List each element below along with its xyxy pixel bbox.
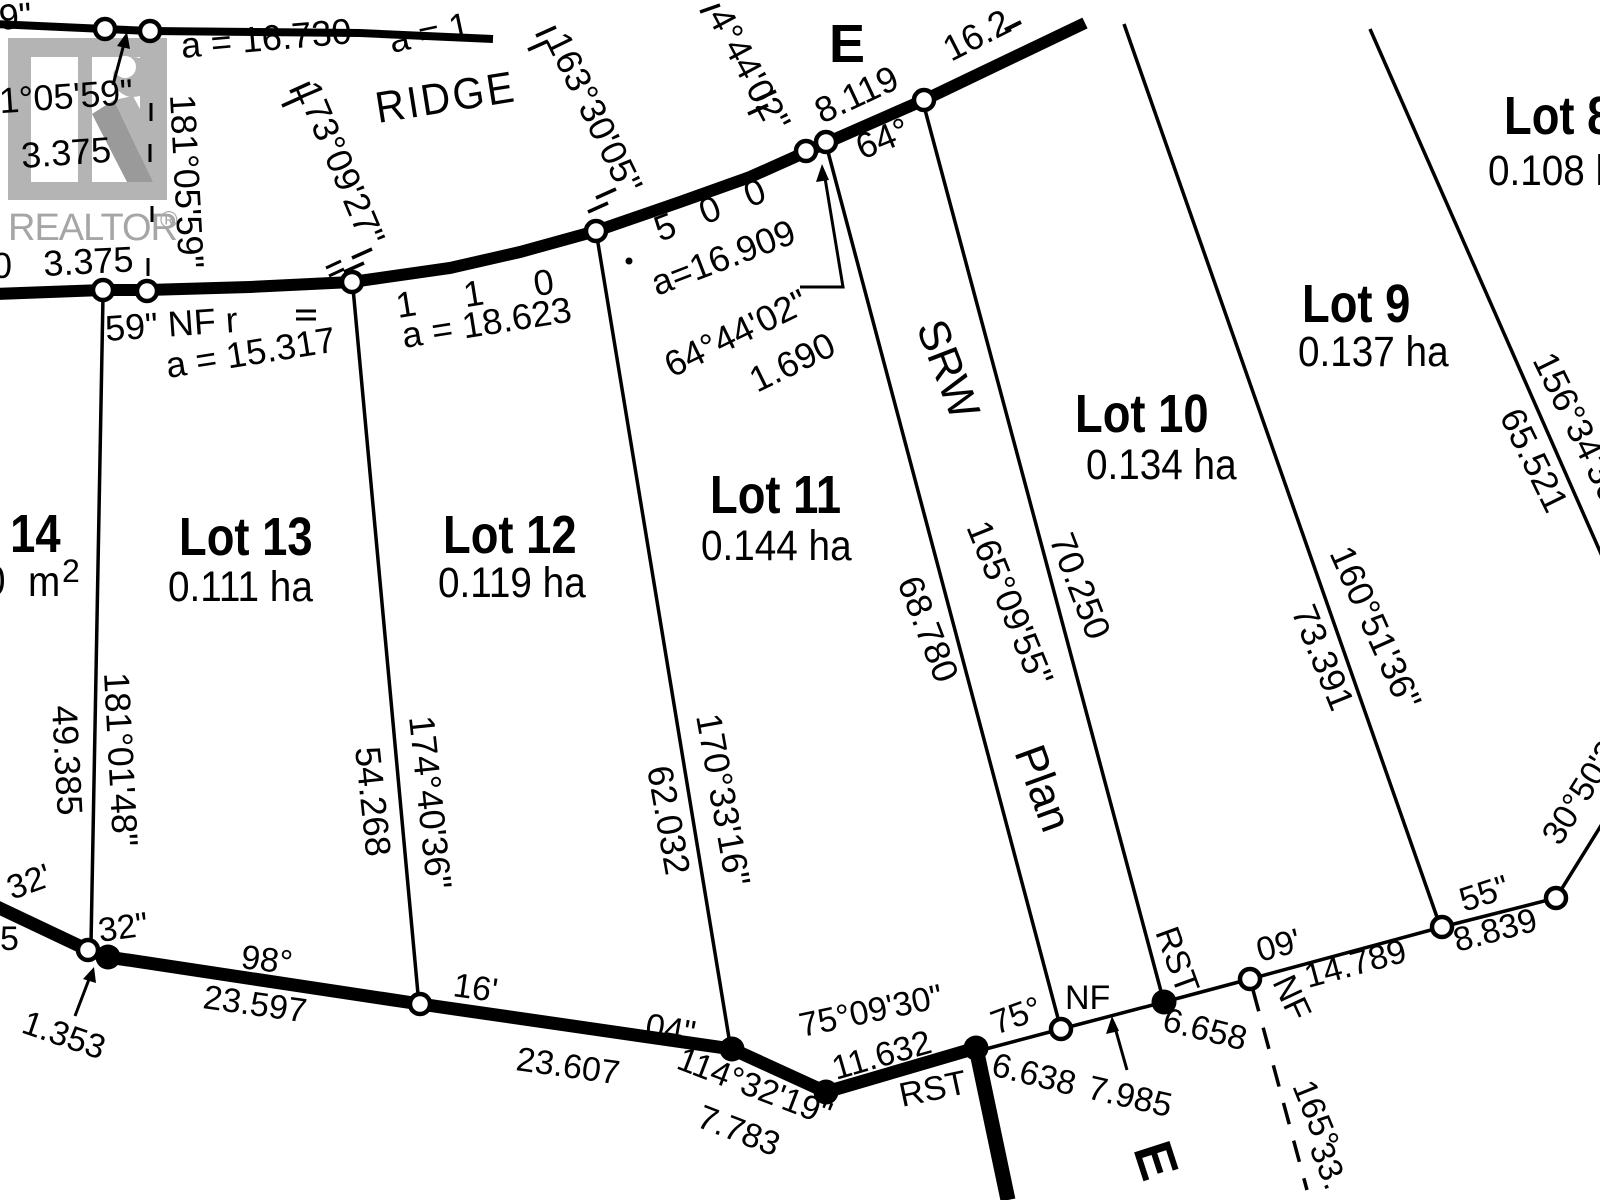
svg-text:2: 2 [62, 553, 80, 589]
svg-text:Lot 8: Lot 8 [1504, 85, 1600, 146]
svg-text:32": 32" [96, 905, 151, 950]
svg-text:0.108 ha: 0.108 ha [1488, 146, 1600, 194]
svg-text:3.375: 3.375 [42, 238, 134, 284]
svg-text:49.385: 49.385 [44, 704, 91, 816]
svg-text:0.144 ha: 0.144 ha [701, 521, 852, 569]
svg-text:0.137 ha: 0.137 ha [1298, 327, 1449, 375]
svg-text:Lot 10: Lot 10 [1075, 383, 1209, 444]
svg-text:Lot 14: Lot 14 [0, 503, 61, 564]
svg-text:98°: 98° [239, 938, 295, 982]
svg-text:Lot 11: Lot 11 [710, 464, 841, 525]
svg-text:0.134 ha: 0.134 ha [1086, 440, 1237, 488]
svg-text:0: 0 [0, 556, 6, 604]
svg-text:NF: NF [1065, 979, 1110, 1017]
svg-text:E: E [829, 14, 865, 74]
svg-text:16': 16' [451, 966, 500, 1010]
svg-text:0.119 ha: 0.119 ha [438, 558, 586, 606]
svg-text:9": 9" [0, 0, 33, 38]
svg-text:3.375: 3.375 [20, 129, 113, 176]
svg-text:Lot 13: Lot 13 [179, 506, 313, 567]
svg-text:m: m [28, 557, 60, 605]
svg-text:0: 0 [0, 245, 12, 286]
svg-text:Lot 9: Lot 9 [1302, 273, 1410, 334]
svg-text:0.111 ha: 0.111 ha [168, 562, 313, 610]
svg-text:5: 5 [0, 920, 19, 958]
svg-text:Lot 12: Lot 12 [443, 504, 577, 565]
